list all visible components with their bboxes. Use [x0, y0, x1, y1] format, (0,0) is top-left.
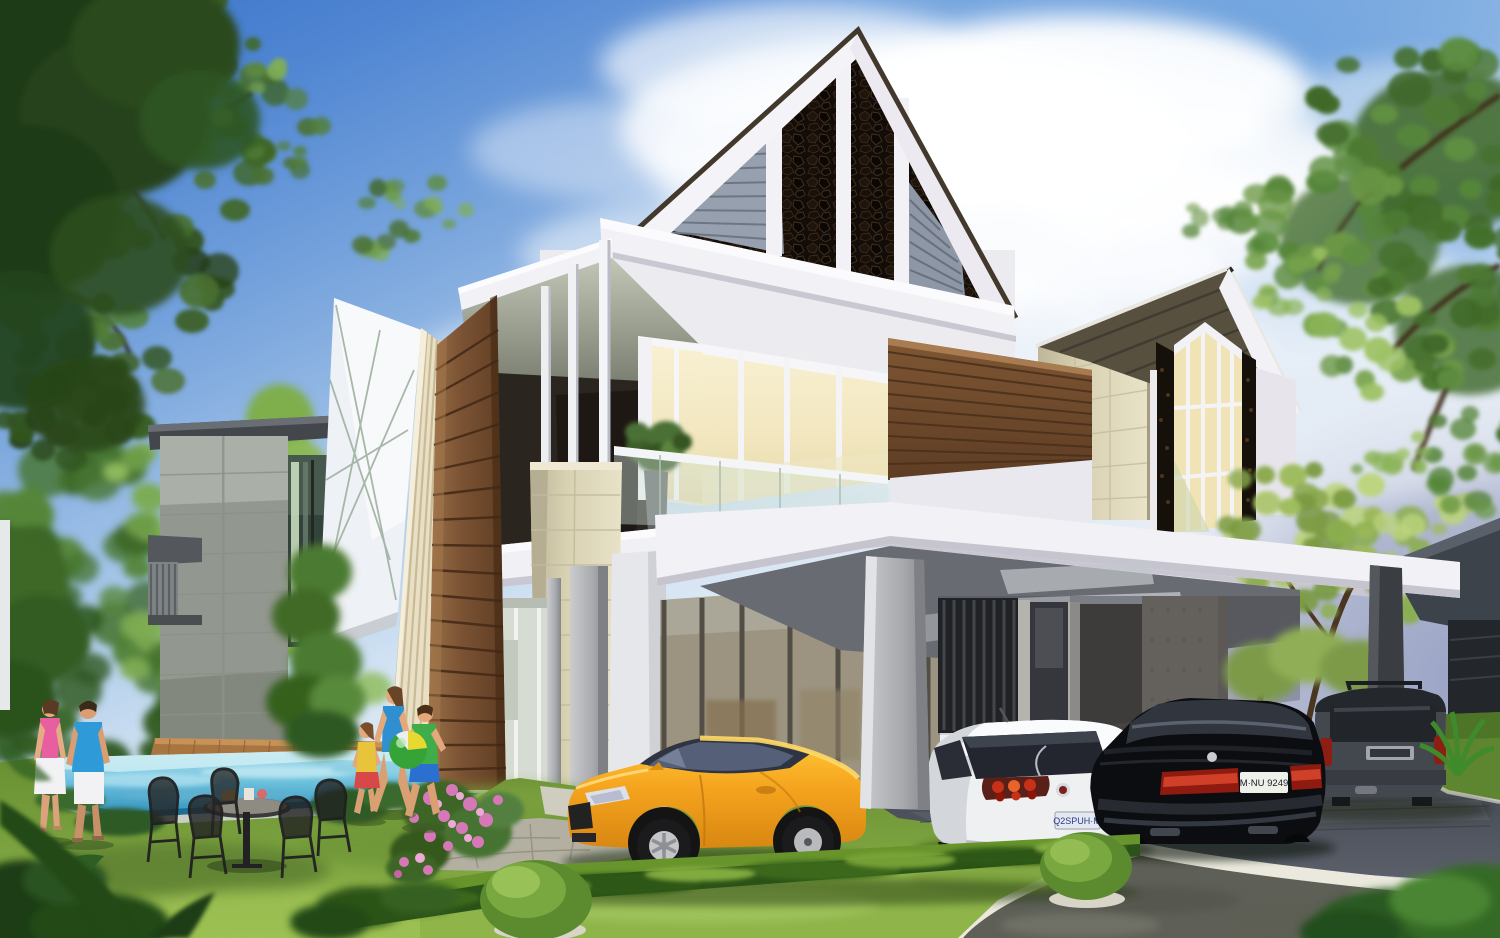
svg-text:M·NU 9249: M·NU 9249 [1240, 778, 1289, 789]
svg-text:Q2SPUH·M: Q2SPUH·M [1053, 816, 1101, 826]
